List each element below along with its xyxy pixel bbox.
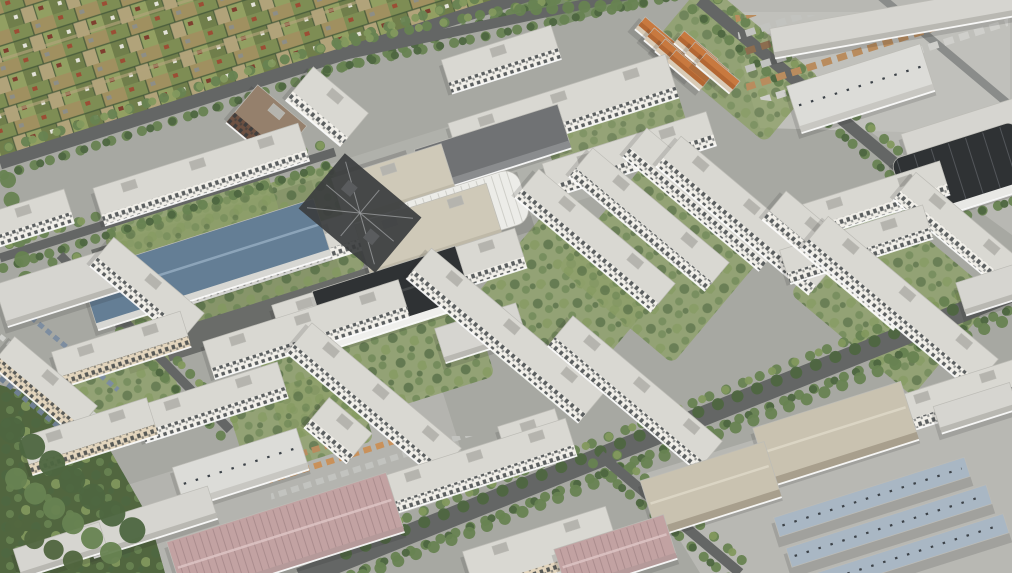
aerial-render-viewport <box>0 0 1012 573</box>
masterplan-aerial-render <box>0 0 1012 573</box>
